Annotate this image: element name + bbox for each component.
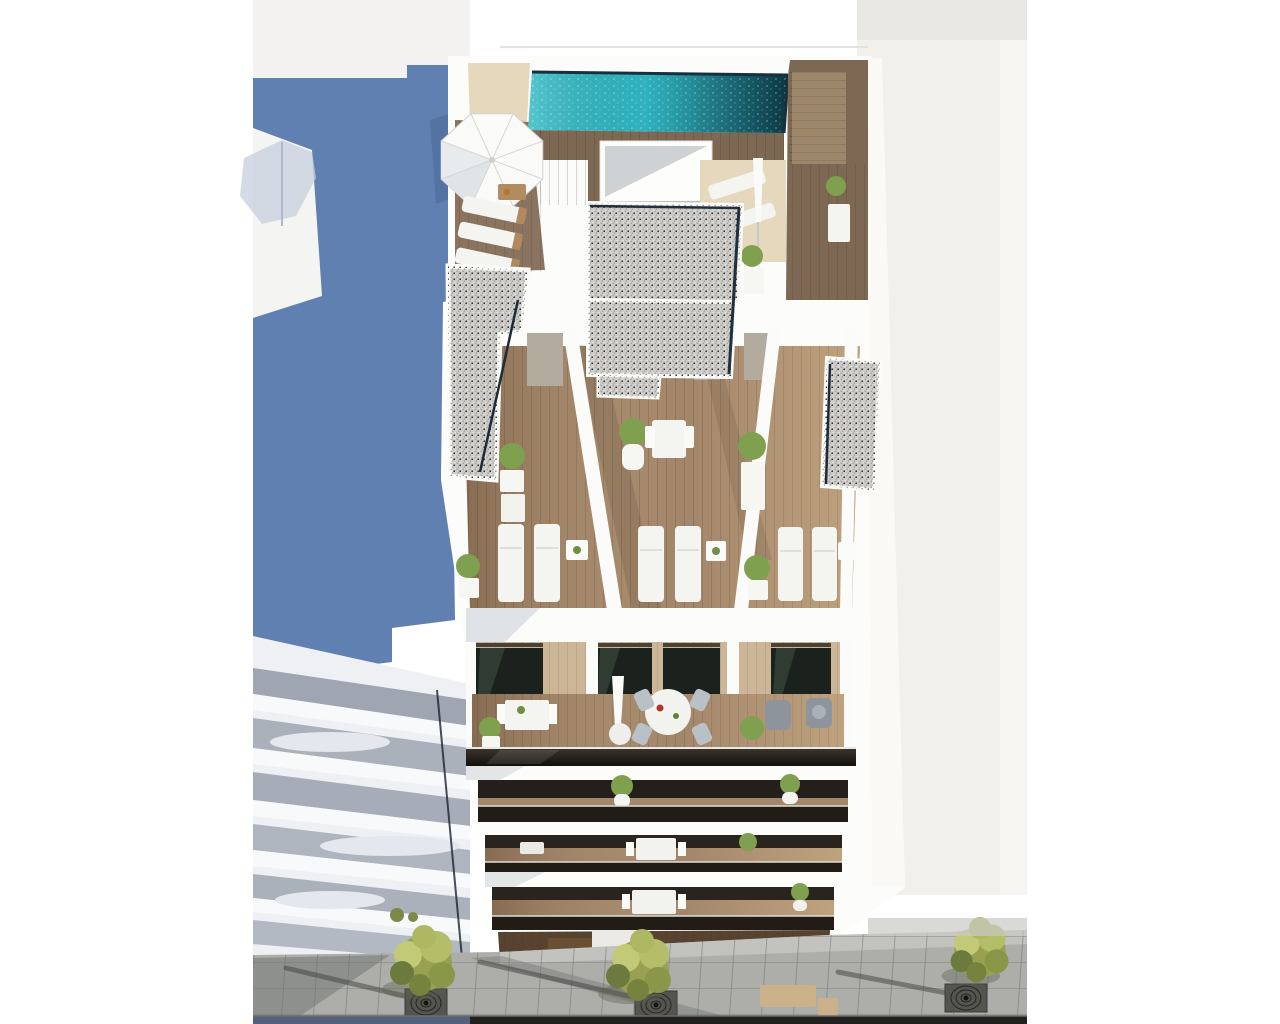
pool-sparkle bbox=[528, 72, 788, 133]
terrace-door bbox=[527, 333, 563, 386]
glass-balustrade bbox=[492, 916, 834, 930]
main-building bbox=[441, 47, 905, 962]
gravel-roof-center bbox=[588, 203, 742, 398]
balcony-table-set bbox=[632, 890, 676, 914]
plant-pot bbox=[611, 775, 633, 797]
plant-vase bbox=[782, 792, 798, 804]
balcony-level bbox=[466, 642, 856, 766]
road-asphalt bbox=[470, 1016, 1027, 1024]
deck-stairs bbox=[786, 60, 868, 300]
fascia-band bbox=[478, 822, 848, 835]
plant-vase bbox=[614, 794, 630, 807]
left-neighbor-building bbox=[253, 636, 470, 968]
balcony-chair bbox=[626, 842, 634, 856]
gravel-roof-right bbox=[822, 358, 880, 490]
stair-highlight bbox=[792, 72, 846, 164]
table-plant bbox=[573, 546, 581, 554]
plant-pot bbox=[619, 418, 647, 446]
plant-pot bbox=[826, 176, 846, 196]
plant-cart bbox=[741, 462, 765, 510]
balcony-table-set bbox=[636, 838, 676, 860]
architectural-render bbox=[0, 0, 1280, 1024]
plant-pot bbox=[780, 774, 800, 794]
backdrop-right-column bbox=[1000, 40, 1027, 895]
sun-lounger bbox=[675, 526, 701, 602]
bistro-table bbox=[652, 420, 686, 458]
swimming-pool bbox=[528, 72, 788, 133]
table-setting bbox=[657, 705, 664, 712]
bench bbox=[760, 985, 816, 1007]
tree-grate bbox=[945, 984, 987, 1012]
side-table bbox=[498, 184, 526, 200]
lower-balcony-1 bbox=[478, 774, 848, 822]
parasol-hub bbox=[489, 157, 495, 163]
dining-chair bbox=[549, 704, 557, 724]
planter bbox=[748, 580, 768, 600]
glass-balustrade bbox=[478, 806, 848, 822]
balcony-bench bbox=[520, 842, 544, 854]
side-table bbox=[838, 542, 856, 560]
plant-pot bbox=[456, 554, 480, 578]
terrace-chair bbox=[501, 494, 525, 522]
deck-chair bbox=[828, 204, 850, 242]
balcony-chair bbox=[678, 842, 686, 856]
base-bush bbox=[408, 912, 418, 922]
road bbox=[253, 1016, 1027, 1024]
rooftop-loungers bbox=[454, 196, 527, 276]
plant-pot bbox=[744, 555, 770, 581]
plant-pot bbox=[739, 833, 757, 851]
armchair-cushion bbox=[812, 705, 826, 719]
plant-vase bbox=[622, 444, 644, 470]
armchair bbox=[765, 700, 791, 730]
lounger-terraces bbox=[456, 524, 856, 602]
glass-door bbox=[663, 648, 720, 694]
dining-table bbox=[505, 700, 549, 730]
base-bush bbox=[390, 908, 404, 922]
lower-balcony-3 bbox=[492, 883, 834, 930]
balcony-chair bbox=[678, 894, 686, 909]
plant-pot bbox=[791, 883, 809, 901]
stairwell-box bbox=[600, 141, 712, 202]
dining-table-round bbox=[645, 689, 691, 735]
sun-lounger bbox=[534, 524, 560, 602]
parasol-base bbox=[609, 723, 631, 745]
balcony-chair bbox=[622, 894, 630, 909]
plant-pot bbox=[479, 717, 501, 739]
table-plant bbox=[712, 547, 720, 555]
road-shaded bbox=[253, 1016, 470, 1024]
plant-pot bbox=[499, 443, 525, 469]
glass-balustrade bbox=[485, 862, 842, 872]
lower-balcony-2 bbox=[485, 833, 842, 872]
render-canvas bbox=[0, 0, 1280, 1024]
bench bbox=[818, 998, 838, 1016]
towel bbox=[504, 189, 510, 195]
planter bbox=[744, 268, 764, 294]
sun-lounger bbox=[778, 527, 803, 601]
plant-pot bbox=[740, 716, 764, 740]
plant-vase bbox=[793, 900, 807, 911]
backdrop-top-strip bbox=[857, 0, 1027, 40]
table-plant bbox=[517, 706, 525, 714]
sun-lounger bbox=[638, 526, 664, 602]
parasol bbox=[441, 114, 543, 206]
wall-base-shadow bbox=[868, 918, 1027, 936]
sun-lounger bbox=[498, 524, 524, 602]
table-setting bbox=[673, 713, 679, 719]
left-neighbor-upper bbox=[240, 65, 462, 712]
plant-pot bbox=[741, 245, 763, 267]
planter bbox=[500, 470, 524, 492]
sun-lounger bbox=[812, 527, 837, 601]
plant-pot bbox=[738, 432, 766, 460]
bistro-chair bbox=[645, 426, 655, 448]
bistro-chair bbox=[684, 426, 694, 448]
planter bbox=[459, 578, 479, 598]
